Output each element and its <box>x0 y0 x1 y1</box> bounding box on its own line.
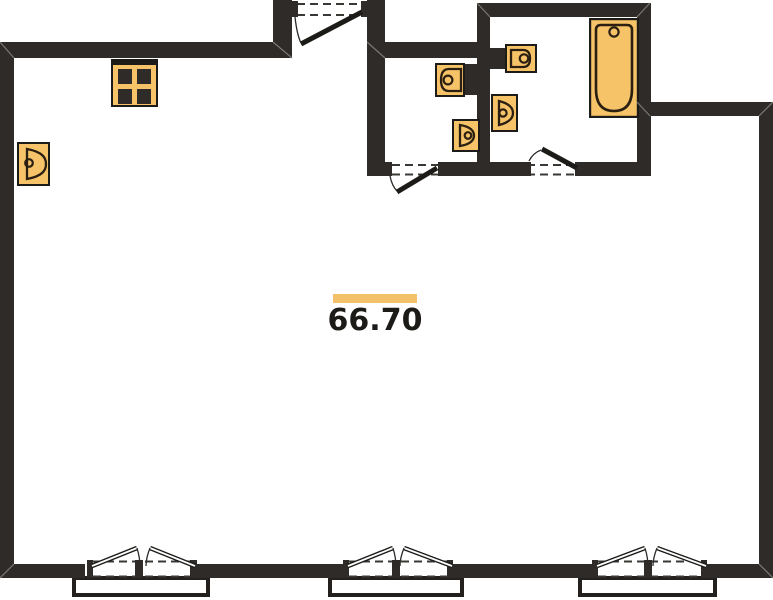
area-accent-bar <box>333 294 417 303</box>
area-label: 66.70 <box>323 294 427 337</box>
wc-door <box>386 162 438 192</box>
window-middle <box>343 548 453 578</box>
area-value: 66.70 <box>323 305 427 337</box>
wall-miter-seams <box>0 3 773 578</box>
window-left <box>87 548 197 578</box>
window-right <box>592 548 707 578</box>
bathroom-door <box>525 149 582 176</box>
entry-door <box>291 1 368 44</box>
floor-plan: 66.70 <box>0 0 773 600</box>
